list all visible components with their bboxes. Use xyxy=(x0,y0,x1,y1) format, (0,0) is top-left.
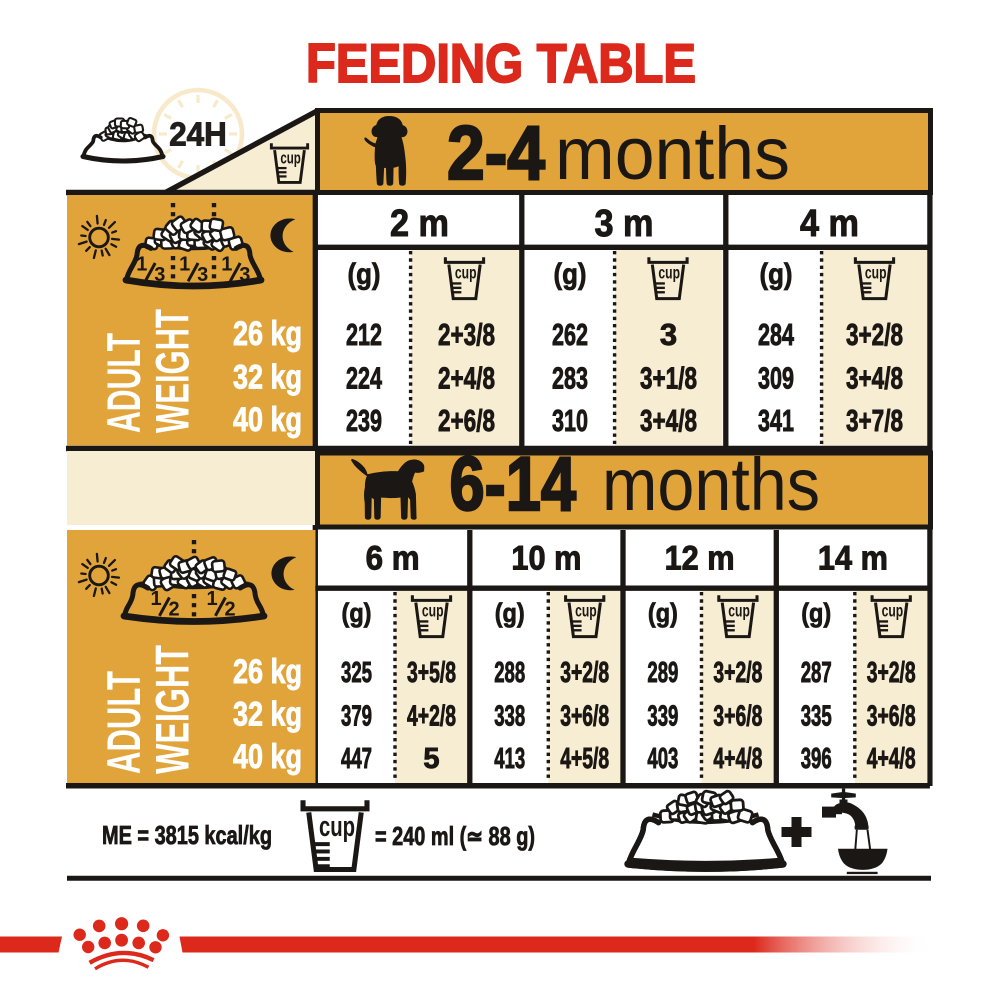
svg-text:3 m: 3 m xyxy=(595,203,654,245)
svg-text:months: months xyxy=(555,112,790,195)
svg-text:3: 3 xyxy=(154,264,165,286)
svg-text:289: 289 xyxy=(647,657,678,689)
svg-text:3+7/8: 3+7/8 xyxy=(846,403,903,438)
svg-text:6 m: 6 m xyxy=(366,540,420,578)
svg-text:32 kg: 32 kg xyxy=(233,696,302,734)
svg-text:3: 3 xyxy=(239,264,250,286)
svg-text:2+4/8: 2+4/8 xyxy=(438,361,495,396)
svg-text:4+5/8: 4+5/8 xyxy=(560,743,609,775)
svg-text:339: 339 xyxy=(647,701,678,733)
svg-text:14 m: 14 m xyxy=(818,540,888,578)
svg-text:6-14: 6-14 xyxy=(450,442,577,527)
svg-text:403: 403 xyxy=(647,743,678,775)
svg-text:(g): (g) xyxy=(342,598,372,628)
svg-text:447: 447 xyxy=(341,743,372,775)
svg-text:cup: cup xyxy=(865,264,887,283)
svg-text:3+1/8: 3+1/8 xyxy=(640,361,697,396)
svg-text:cup: cup xyxy=(319,811,355,843)
svg-text:283: 283 xyxy=(552,361,588,396)
svg-text:310: 310 xyxy=(552,403,588,438)
svg-text:396: 396 xyxy=(801,743,832,775)
svg-text:284: 284 xyxy=(758,317,795,352)
svg-text:32 kg: 32 kg xyxy=(233,359,302,397)
svg-text:309: 309 xyxy=(758,361,794,396)
svg-text:3+6/8: 3+6/8 xyxy=(713,701,762,733)
svg-text:5: 5 xyxy=(423,743,439,775)
svg-text:2+6/8: 2+6/8 xyxy=(438,403,495,438)
svg-text:(g): (g) xyxy=(801,598,831,628)
svg-text:379: 379 xyxy=(341,701,372,733)
svg-text:3+2/8: 3+2/8 xyxy=(867,657,916,689)
svg-text:2 m: 2 m xyxy=(390,203,449,245)
svg-text:3+2/8: 3+2/8 xyxy=(713,657,762,689)
svg-text:cup: cup xyxy=(280,149,301,167)
svg-text:338: 338 xyxy=(494,701,525,733)
svg-text:325: 325 xyxy=(341,657,372,689)
svg-text:341: 341 xyxy=(758,403,794,438)
svg-text:3+5/8: 3+5/8 xyxy=(407,657,456,689)
svg-text:(g): (g) xyxy=(554,258,587,291)
svg-text:2+3/8: 2+3/8 xyxy=(438,317,495,352)
svg-text:2: 2 xyxy=(224,599,235,621)
svg-text:cup: cup xyxy=(575,602,597,621)
svg-text:cup: cup xyxy=(882,602,904,621)
svg-text:288: 288 xyxy=(494,657,525,689)
svg-text:4+4/8: 4+4/8 xyxy=(867,743,916,775)
svg-text:months: months xyxy=(602,443,820,526)
svg-text:3+4/8: 3+4/8 xyxy=(846,361,903,396)
svg-text:3: 3 xyxy=(197,264,208,286)
svg-text:4 m: 4 m xyxy=(800,203,859,245)
svg-text:(g): (g) xyxy=(495,598,525,628)
svg-text:335: 335 xyxy=(801,701,832,733)
svg-text:4+2/8: 4+2/8 xyxy=(407,701,456,733)
svg-text:26 kg: 26 kg xyxy=(233,315,302,353)
svg-text:40 kg: 40 kg xyxy=(233,738,302,776)
svg-text:12 m: 12 m xyxy=(665,540,735,578)
svg-text:(g): (g) xyxy=(760,258,793,291)
svg-text:FEEDING TABLE: FEEDING TABLE xyxy=(306,32,696,94)
svg-text:3+2/8: 3+2/8 xyxy=(846,317,903,352)
svg-text:239: 239 xyxy=(346,403,382,438)
svg-text:= 240 ml (≃ 88 g): = 240 ml (≃ 88 g) xyxy=(375,821,535,851)
svg-text:212: 212 xyxy=(346,317,382,352)
svg-text:cup: cup xyxy=(422,602,444,621)
svg-text:1: 1 xyxy=(206,588,217,610)
svg-text:262: 262 xyxy=(552,317,588,352)
svg-text:WEIGHT: WEIGHT xyxy=(146,645,199,774)
svg-text:1: 1 xyxy=(179,254,190,276)
svg-text:ADULT: ADULT xyxy=(97,333,150,433)
svg-text:2: 2 xyxy=(168,599,179,621)
svg-text:40 kg: 40 kg xyxy=(233,401,302,439)
svg-text:287: 287 xyxy=(801,657,832,689)
svg-text:(g): (g) xyxy=(648,598,678,628)
svg-text:3+6/8: 3+6/8 xyxy=(560,701,609,733)
svg-text:224: 224 xyxy=(346,361,383,396)
svg-text:cup: cup xyxy=(455,264,477,283)
svg-text:ADULT: ADULT xyxy=(97,671,150,774)
svg-text:1: 1 xyxy=(221,254,232,276)
svg-text:WEIGHT: WEIGHT xyxy=(146,309,199,433)
svg-text:3+6/8: 3+6/8 xyxy=(867,701,916,733)
svg-text:10 m: 10 m xyxy=(511,540,581,578)
svg-text:3+4/8: 3+4/8 xyxy=(640,403,697,438)
svg-text:3+2/8: 3+2/8 xyxy=(560,657,609,689)
svg-text:2-4: 2-4 xyxy=(447,111,545,196)
svg-text:24H: 24H xyxy=(169,116,227,153)
svg-text:cup: cup xyxy=(728,602,750,621)
svg-text:cup: cup xyxy=(658,264,680,283)
svg-text:26 kg: 26 kg xyxy=(233,653,302,691)
svg-text:1: 1 xyxy=(136,254,147,276)
svg-text:413: 413 xyxy=(494,743,525,775)
svg-text:ME = 3815 kcal/kg: ME = 3815 kcal/kg xyxy=(102,820,272,850)
svg-text:4+4/8: 4+4/8 xyxy=(713,743,762,775)
svg-text:1: 1 xyxy=(150,588,161,610)
svg-text:3: 3 xyxy=(660,317,677,352)
svg-text:(g): (g) xyxy=(348,258,381,291)
